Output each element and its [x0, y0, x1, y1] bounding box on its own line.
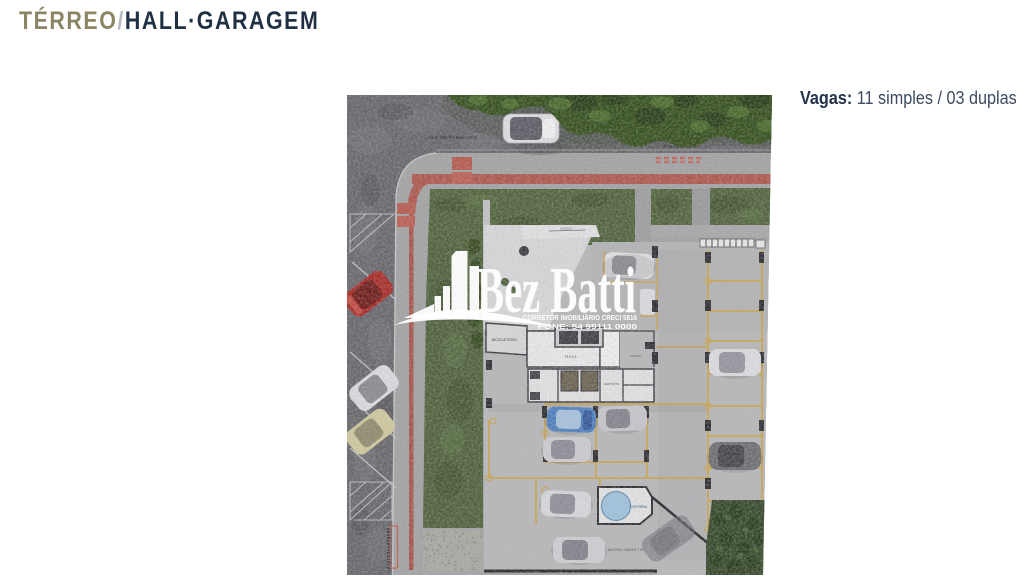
svg-text:FONE: 54 99111 0000: FONE: 54 99111 0000 — [538, 322, 637, 331]
svg-text:CORRETOR IMOBILIÁRIO CRECI 581: CORRETOR IMOBILIÁRIO CRECI 5816 — [523, 313, 637, 322]
